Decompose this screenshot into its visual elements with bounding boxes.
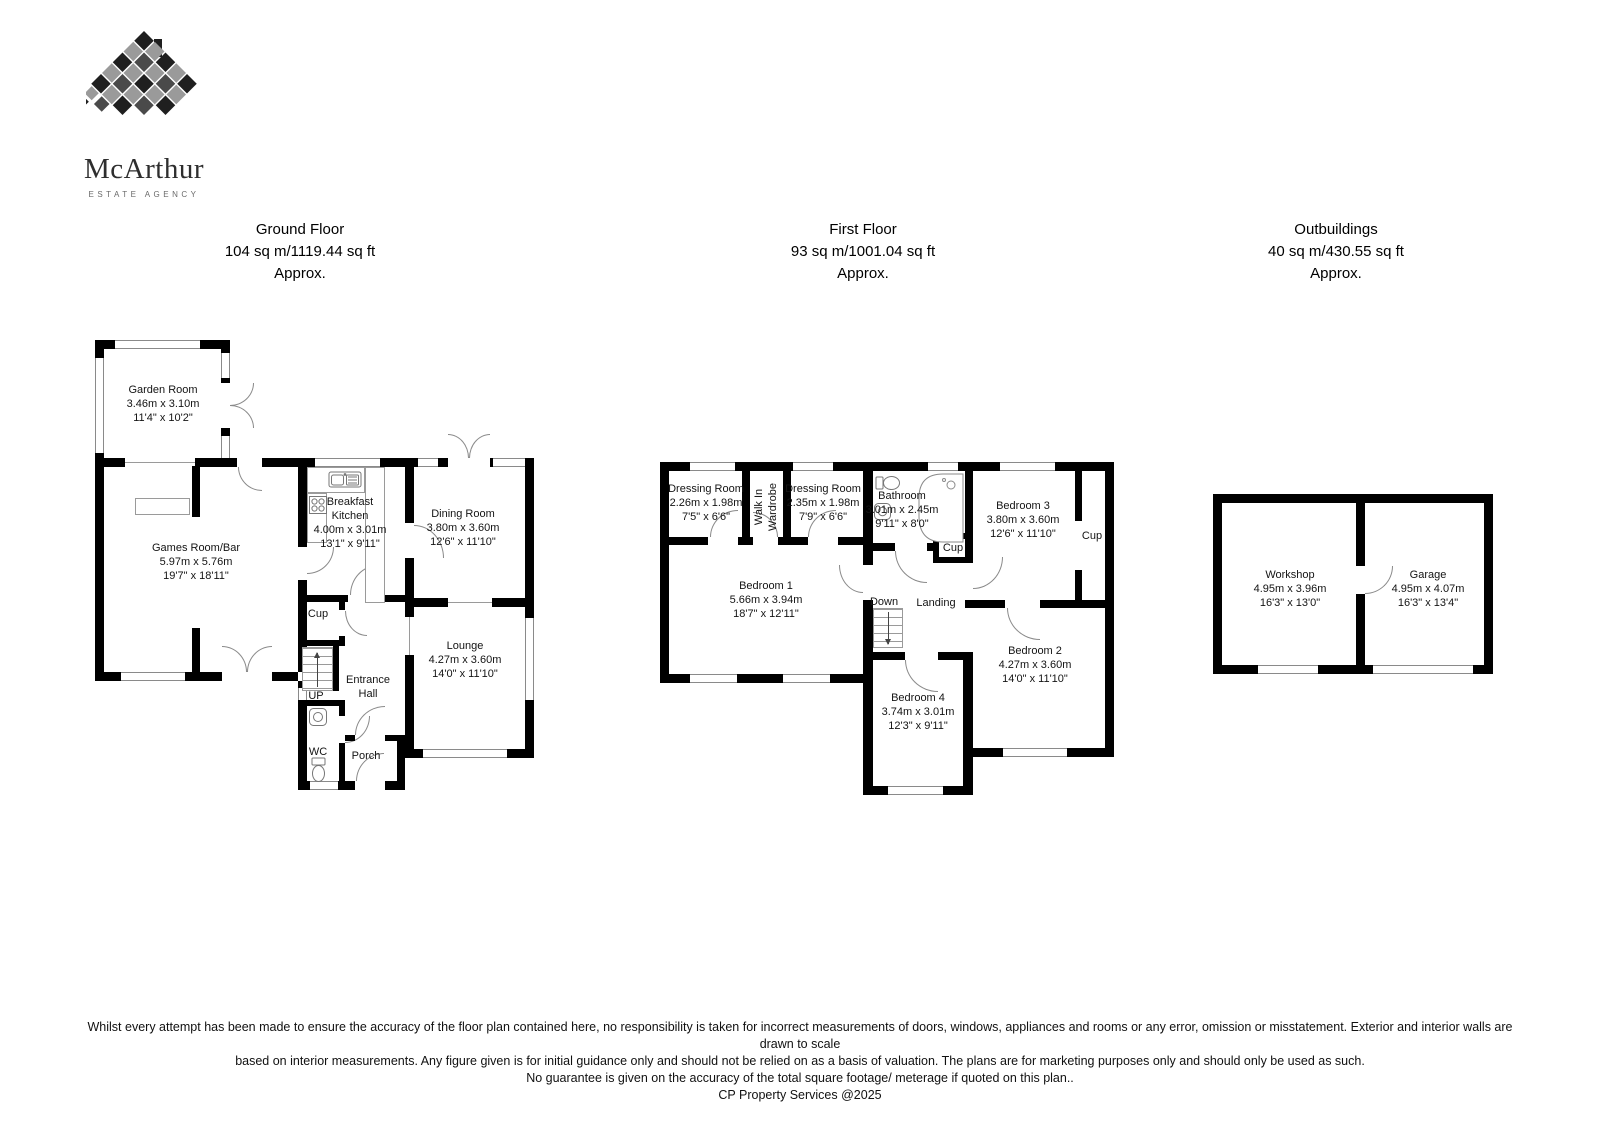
wall: [1075, 570, 1082, 600]
disclaimer-line: No guarantee is given on the accuracy of…: [75, 1070, 1525, 1087]
disclaimer-line: based on interior measurements. Any figu…: [75, 1053, 1525, 1070]
wall: [385, 781, 405, 790]
wall: [838, 537, 863, 545]
room-name: Garden Room: [127, 383, 200, 397]
label-up: UP: [308, 689, 323, 703]
room-metric: 3.74m x 3.01m: [882, 705, 955, 719]
window: [121, 672, 185, 681]
wall: [339, 743, 345, 781]
window: [1003, 748, 1067, 757]
room-name: Dressing Room: [785, 482, 861, 496]
wall: [192, 628, 200, 681]
ground-floor-plan: Garden Room 3.46m x 3.10m 11'4" x 10'2" …: [88, 333, 548, 798]
room-dressing-2: Dressing Room 2.35m x 1.98m 7'9" x 6'6": [785, 482, 861, 524]
room-games-room: Games Room/Bar 5.97m x 5.76m 19'7" x 18'…: [152, 541, 240, 583]
wall: [863, 600, 873, 795]
door-arc: [1365, 566, 1393, 594]
room-metric: 3.46m x 3.10m: [127, 397, 200, 411]
room-name: Bedroom 2: [999, 644, 1072, 658]
garage-door: [1373, 665, 1473, 674]
room-imperial: 12'6" x 11'10": [427, 535, 500, 549]
toilet-icon: [310, 757, 327, 783]
first-floor-plan: Dressing Room 2.26m x 1.98m 7'5" x 6'6" …: [655, 455, 1120, 805]
wall: [933, 557, 973, 563]
kitchen-sink-icon: [328, 471, 362, 488]
wall: [339, 706, 345, 716]
wall: [1075, 471, 1082, 521]
area: 104 sq m/1119.44 sq ft: [225, 241, 375, 263]
room-breakfast-kitchen: Breakfast Kitchen 4.00m x 3.01m 13'1" x …: [314, 495, 387, 551]
door-arc: [238, 467, 262, 491]
room-imperial: 19'7" x 18'11": [152, 569, 240, 583]
wall: [873, 543, 895, 551]
room-name: Breakfast Kitchen: [319, 495, 381, 523]
floorplan-page: { "logo": { "brand": "McArthur", "taglin…: [0, 0, 1600, 1131]
counter: [135, 498, 190, 515]
approx: Approx.: [225, 263, 375, 285]
room-metric: 5.97m x 5.76m: [152, 555, 240, 569]
room-name: Dressing Room: [668, 482, 744, 496]
window: [525, 618, 534, 700]
room-imperial: 16'3" x 13'4": [1392, 596, 1465, 610]
credit-line: CP Property Services @2025: [75, 1087, 1525, 1104]
label-porch: Porch: [352, 749, 381, 763]
wall: [965, 471, 973, 560]
outbuildings-title: Outbuildings 40 sq m/430.55 sq ft Approx…: [1268, 219, 1404, 285]
window: [783, 674, 830, 683]
window: [418, 458, 438, 467]
window: [423, 749, 507, 758]
area: 40 sq m/430.55 sq ft: [1268, 241, 1404, 263]
wall: [1356, 503, 1365, 566]
window: [1000, 462, 1055, 471]
title: Outbuildings: [1268, 219, 1404, 241]
window: [115, 340, 200, 349]
room-garage: Garage 4.95m x 4.07m 16'3" x 13'4": [1392, 568, 1465, 610]
room-name: Bedroom 3: [987, 499, 1060, 513]
room-workshop: Workshop 4.95m x 3.96m 16'3" x 13'0": [1254, 568, 1327, 610]
room-name: Bathroom: [866, 489, 939, 503]
label-text: Porch: [352, 749, 381, 763]
window: [793, 462, 833, 471]
window: [690, 462, 735, 471]
window: [221, 353, 230, 378]
window: [95, 358, 104, 453]
door-arc: [355, 706, 385, 735]
room-metric: 2.35m x 1.98m: [785, 496, 861, 510]
room-imperial: 7'9" x 6'6": [785, 510, 861, 524]
wall: [405, 607, 414, 617]
stairs-arrow-up: [317, 653, 318, 687]
wall: [1040, 600, 1114, 608]
approx: Approx.: [1268, 263, 1404, 285]
door-arc: [973, 557, 1003, 589]
door-arc: [1007, 608, 1040, 640]
disclaimer: Whilst every attempt has been made to en…: [75, 1019, 1525, 1103]
room-metric: 3.01m x 2.45m: [866, 503, 939, 517]
brand-name: McArthur: [76, 153, 212, 186]
room-dining-room: Dining Room 3.80m x 3.60m 12'6" x 11'10": [427, 507, 500, 549]
room-imperial: 16'3" x 13'0": [1254, 596, 1327, 610]
room-name: Garage: [1392, 568, 1465, 582]
wall: [1213, 494, 1493, 503]
wall: [738, 537, 753, 545]
label-text: UP: [308, 689, 323, 703]
label-text: Down: [870, 595, 898, 609]
room-garden-room: Garden Room 3.46m x 3.10m 11'4" x 10'2": [127, 383, 200, 425]
wall: [965, 600, 1005, 608]
window: [690, 674, 737, 683]
room-name: Games Room/Bar: [152, 541, 240, 555]
label-wc: WC: [309, 745, 327, 759]
wall: [665, 537, 708, 545]
label-text: WC: [309, 745, 327, 759]
label-cup-right: Cup: [1082, 529, 1102, 543]
wall: [192, 466, 200, 517]
door-arc: [895, 551, 927, 583]
wall: [863, 652, 905, 660]
door-arc: [230, 383, 254, 406]
room-imperial: 14'0" x 11'10": [999, 672, 1072, 686]
room-imperial: 11'4" x 10'2": [127, 411, 200, 425]
label-text: Landing: [916, 596, 955, 610]
wall: [405, 558, 414, 598]
room-name: Bedroom 4: [882, 691, 955, 705]
room-bedroom-4: Bedroom 4 3.74m x 3.01m 12'3" x 9'11": [882, 691, 955, 733]
room-bedroom-2: Bedroom 2 4.27m x 3.60m 14'0" x 11'10": [999, 644, 1072, 686]
room-metric: 4.27m x 3.60m: [429, 653, 502, 667]
room-metric: 3.80m x 3.60m: [427, 521, 500, 535]
logo: McArthur ESTATE AGENCY: [76, 28, 212, 199]
first-floor-title: First Floor 93 sq m/1001.04 sq ft Approx…: [791, 219, 935, 285]
window: [1258, 665, 1318, 674]
room-metric: 4.27m x 3.60m: [999, 658, 1072, 672]
wall: [963, 652, 973, 795]
door-arc: [222, 646, 247, 672]
room-imperial: 12'6" x 11'10": [987, 527, 1060, 541]
wall: [1484, 494, 1493, 674]
room-name: Lounge: [429, 639, 502, 653]
disclaimer-line: Whilst every attempt has been made to en…: [75, 1019, 1525, 1053]
basin-icon: [309, 708, 327, 726]
ground-floor-title: Ground Floor 104 sq m/1119.44 sq ft Appr…: [225, 219, 375, 285]
room-metric: 4.00m x 3.01m: [314, 523, 387, 537]
wall: [345, 735, 355, 741]
door-arc: [839, 565, 863, 593]
label-entrance-hall: Entrance Hall: [337, 673, 399, 701]
opening-line: [409, 617, 410, 655]
room-bedroom-1: Bedroom 1 5.66m x 3.94m 18'7" x 12'11": [730, 579, 803, 621]
label-cup-mid: Cup: [943, 541, 963, 555]
window: [493, 458, 525, 467]
room-name: Walk In Wardrobe: [752, 477, 780, 537]
label-cup: Cup: [308, 607, 328, 621]
label-text: Cup: [943, 541, 963, 555]
room-imperial: 14'0" x 11'10": [429, 667, 502, 681]
window: [928, 462, 958, 471]
wall: [298, 595, 348, 602]
room-bathroom: Bathroom 3.01m x 2.45m 9'11" x 8'0": [866, 489, 939, 531]
room-imperial: 18'7" x 12'11": [730, 607, 803, 621]
opening-line: [448, 602, 492, 603]
room-imperial: 9'11" x 8'0": [866, 517, 939, 531]
title: Ground Floor: [225, 219, 375, 241]
label-text: Entrance Hall: [337, 673, 399, 701]
wall: [95, 458, 125, 467]
wall: [272, 672, 298, 681]
door-arc: [345, 611, 367, 636]
area: 93 sq m/1001.04 sq ft: [791, 241, 935, 263]
wall: [778, 537, 808, 545]
room-walk-in-wardrobe: Walk In Wardrobe: [752, 477, 780, 537]
door-arc: [469, 434, 490, 458]
room-bedroom-3: Bedroom 3 3.80m x 3.60m 12'6" x 11'10": [987, 499, 1060, 541]
approx: Approx.: [791, 263, 935, 285]
window: [888, 786, 943, 795]
wall: [1213, 494, 1222, 674]
opening-line: [125, 462, 195, 463]
room-name: Dining Room: [427, 507, 500, 521]
wall: [405, 598, 448, 607]
window: [315, 458, 380, 467]
wall: [339, 602, 345, 610]
wall: [405, 655, 414, 749]
door-arc: [230, 405, 254, 428]
room-metric: 5.66m x 3.94m: [730, 593, 803, 607]
room-metric: 4.95m x 4.07m: [1392, 582, 1465, 596]
room-name: Bedroom 1: [730, 579, 803, 593]
wall: [525, 458, 534, 758]
room-metric: 2.26m x 1.98m: [668, 496, 744, 510]
door-arc: [448, 434, 469, 458]
wall: [1105, 462, 1114, 757]
door-arc: [247, 646, 272, 672]
room-imperial: 7'5" x 6'6": [668, 510, 744, 524]
title: First Floor: [791, 219, 935, 241]
tartan-house-icon: [86, 28, 202, 146]
room-metric: 3.80m x 3.60m: [987, 513, 1060, 527]
wall: [298, 458, 307, 547]
brand-tagline: ESTATE AGENCY: [76, 190, 212, 199]
wall: [492, 598, 534, 607]
room-dressing-1: Dressing Room 2.26m x 1.98m 7'5" x 6'6": [668, 482, 744, 524]
room-lounge: Lounge 4.27m x 3.60m 14'0" x 11'10": [429, 639, 502, 681]
label-landing: Landing: [916, 596, 955, 610]
label-text: Cup: [308, 607, 328, 621]
door-arc: [905, 660, 938, 692]
label-down: Down: [870, 595, 898, 609]
wall: [195, 458, 237, 467]
room-imperial: 13'1" x 9'11": [314, 537, 387, 551]
room-imperial: 12'3" x 9'11": [882, 719, 955, 733]
wall: [1356, 594, 1365, 665]
label-text: Cup: [1082, 529, 1102, 543]
wall: [405, 458, 414, 523]
room-metric: 4.95m x 3.96m: [1254, 582, 1327, 596]
outbuildings-plan: Workshop 4.95m x 3.96m 16'3" x 13'0" Gar…: [1213, 494, 1493, 674]
stairs-arrow-down: [888, 612, 889, 644]
room-name: Workshop: [1254, 568, 1327, 582]
